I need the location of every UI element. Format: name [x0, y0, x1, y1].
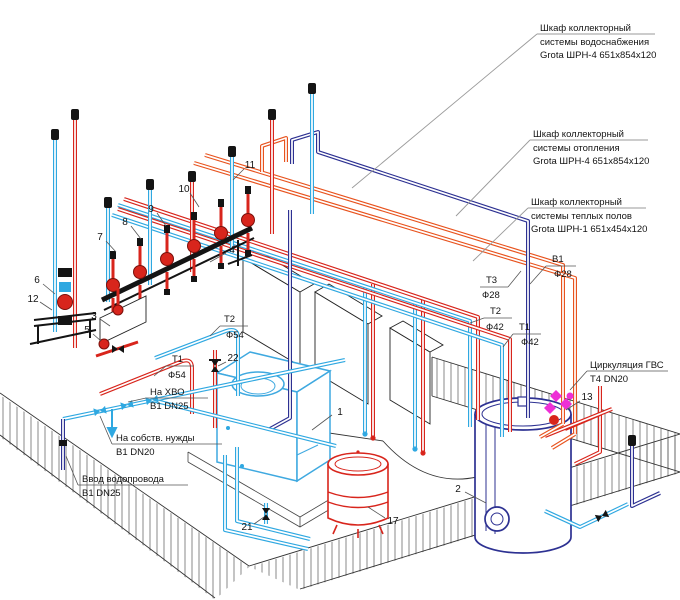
svg-text:Т1: Т1 [172, 354, 183, 365]
svg-text:системы водоснабжения: системы водоснабжения [540, 37, 649, 48]
svg-text:В1 DN20: В1 DN20 [116, 447, 155, 458]
label-own-needs: На собств. нужды В1 DN20 [100, 416, 222, 458]
svg-text:Т2: Т2 [224, 314, 235, 325]
item-22: 22 [227, 353, 239, 364]
svg-text:Grota ШРН-4 651x854x120: Grota ШРН-4 651x854x120 [540, 50, 656, 61]
label-gvs-circulation: Циркуляция ГВС Т4 DN20 [570, 360, 668, 390]
svg-text:системы теплых полов: системы теплых полов [531, 211, 632, 222]
item-11: 11 [245, 160, 256, 171]
pipe-end-dot [362, 431, 367, 436]
svg-text:В1 DN25: В1 DN25 [150, 401, 189, 412]
svg-text:В1: В1 [552, 254, 564, 265]
item-1: 1 [337, 407, 343, 418]
tag-t3: Т3 Ф28 [480, 271, 521, 301]
floor-edge-inner-left [0, 435, 215, 598]
expansion-tank [328, 450, 388, 538]
item-4: 4 [229, 245, 235, 256]
item-8: 8 [122, 217, 128, 228]
safety-valve-icon [211, 360, 219, 372]
valve-icon [112, 345, 124, 353]
svg-text:На собств. нужды: На собств. нужды [116, 433, 195, 444]
item-21: 21 [241, 522, 253, 533]
item-17: 17 [387, 516, 399, 527]
boiler [217, 352, 330, 481]
item-9: 9 [148, 204, 154, 215]
drain-valve-icon [262, 508, 270, 520]
door-swing-arc [383, 441, 477, 479]
svg-text:Т4 DN20: Т4 DN20 [590, 374, 628, 385]
item-2: 2 [455, 484, 461, 495]
branch-arrow [108, 409, 116, 436]
svg-text:Циркуляция ГВС: Циркуляция ГВС [590, 360, 664, 371]
inlet-fitting [59, 440, 67, 446]
item-10: 10 [178, 184, 190, 195]
svg-text:Ф28: Ф28 [554, 269, 572, 280]
svg-text:Шкаф коллекторный: Шкаф коллекторный [531, 197, 622, 208]
item-7: 7 [97, 232, 103, 243]
item-12: 12 [27, 294, 39, 305]
svg-text:Т3: Т3 [486, 275, 497, 286]
item-13: 13 [581, 392, 593, 403]
svg-text:Шкаф коллекторный: Шкаф коллекторный [540, 23, 631, 34]
svg-text:Ф42: Ф42 [521, 337, 539, 348]
svg-text:Ввод водопровода: Ввод водопровода [82, 474, 165, 485]
svg-text:На ХВО: На ХВО [150, 387, 185, 398]
svg-text:Grota ШРН-1 651x454x120: Grota ШРН-1 651x454x120 [531, 224, 647, 235]
svg-text:Ф54: Ф54 [226, 330, 244, 341]
item-6: 6 [34, 275, 40, 286]
svg-text:Ф42: Ф42 [486, 322, 504, 333]
svg-text:системы отопления: системы отопления [533, 143, 620, 154]
svg-text:Т1: Т1 [519, 322, 530, 333]
item-3: 3 [91, 311, 97, 322]
diagram-canvas: 1 2 3 4 5 6 7 8 9 10 11 12 13 17 21 22 Т… [0, 0, 680, 600]
svg-text:Шкаф коллекторный: Шкаф коллекторный [533, 129, 624, 140]
label-cabinet-floor-heating: Шкаф коллекторный системы теплых полов G… [473, 197, 647, 261]
pipe-end-dot [370, 435, 375, 440]
valve-icon [93, 406, 106, 416]
svg-text:Т2: Т2 [490, 306, 501, 317]
svg-text:Grota ШРН-4 651x854x120: Grota ШРН-4 651x854x120 [533, 156, 649, 167]
svg-text:Ф54: Ф54 [168, 370, 186, 381]
floor-hatch-left [0, 395, 249, 600]
svg-text:Ф28: Ф28 [482, 290, 500, 301]
svg-text:В1 DN25: В1 DN25 [82, 488, 121, 499]
boiler-room-piping-diagram: 1 2 3 4 5 6 7 8 9 10 11 12 13 17 21 22 Т… [0, 0, 680, 600]
pipe-end-dot [420, 450, 425, 455]
pipe-end-dot [412, 446, 417, 451]
item-5: 5 [84, 325, 90, 336]
